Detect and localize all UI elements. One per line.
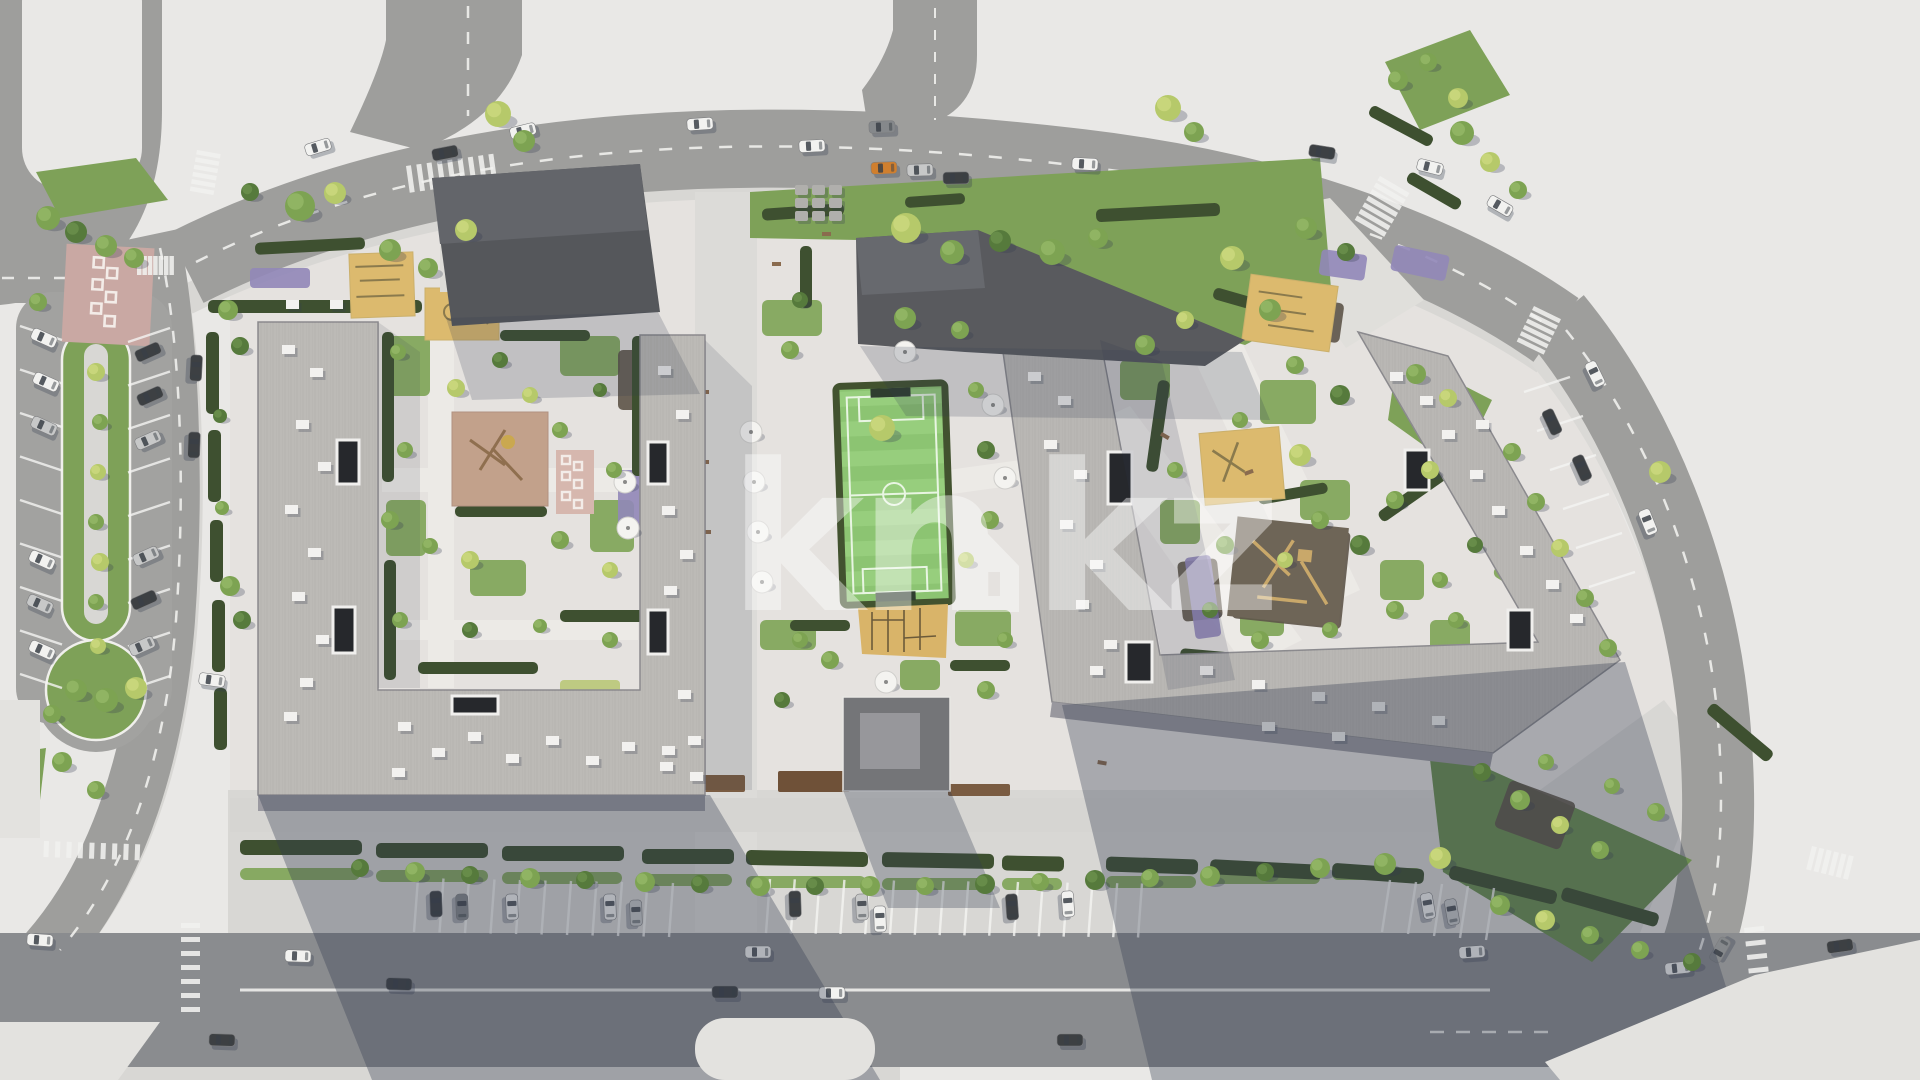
roof-vent <box>662 746 675 755</box>
car-rear-window <box>229 1036 232 1044</box>
roof-vent <box>622 742 635 751</box>
tree-canopy-highlight <box>398 443 407 452</box>
umbrella-pole <box>884 680 888 684</box>
tree-canopy-highlight <box>1157 97 1171 111</box>
seat-cube <box>829 198 842 208</box>
seat-cube <box>795 185 808 195</box>
play-hut <box>1297 549 1312 562</box>
car-rear-window <box>839 989 842 997</box>
tree-canopy-highlight <box>381 241 393 253</box>
tree-canopy-highlight <box>952 322 962 332</box>
tree-canopy-highlight <box>1408 366 1419 377</box>
car-rear-window <box>47 936 51 944</box>
tree-canopy-highlight <box>523 388 532 397</box>
roof-vent <box>688 736 701 745</box>
roof-vent <box>1090 666 1103 675</box>
car-windshield <box>1063 898 1073 904</box>
tree-canopy-highlight <box>220 302 231 313</box>
tree-canopy-highlight <box>1041 241 1055 255</box>
roof-vent <box>546 736 559 745</box>
tree-canopy-highlight <box>607 463 616 472</box>
tree-canopy-highlight <box>1338 244 1348 254</box>
car <box>785 891 802 921</box>
roof-hatch <box>452 696 498 714</box>
roof-hatch <box>648 610 668 654</box>
car-windshield <box>189 439 198 444</box>
roof-vent <box>690 772 703 781</box>
car-rear-window <box>927 166 930 174</box>
car-rear-window <box>190 452 198 455</box>
tree-canopy-highlight <box>96 690 109 703</box>
car <box>907 163 937 180</box>
tree-canopy-highlight <box>522 870 533 881</box>
roof-vent <box>1252 680 1265 689</box>
tree-canopy-highlight <box>92 554 102 564</box>
playground-left-central <box>452 412 548 506</box>
tree-canopy-highlight <box>93 415 102 424</box>
car <box>870 906 887 936</box>
tree-canopy-highlight <box>793 293 802 302</box>
roof-vent <box>660 762 673 771</box>
tree-canopy-highlight <box>1332 387 1343 398</box>
tree-canopy-highlight <box>352 860 362 870</box>
entrance-pavilion <box>843 697 950 791</box>
hedge-row <box>746 850 868 867</box>
tree-canopy-highlight <box>457 221 469 233</box>
seat-cube <box>812 211 825 221</box>
tree-canopy-highlight <box>382 512 392 522</box>
tree-canopy-highlight <box>977 876 988 887</box>
seat-cube <box>829 185 842 195</box>
lawn-patch <box>762 300 822 336</box>
car <box>1057 891 1075 921</box>
car <box>209 1034 239 1051</box>
tree-canopy-highlight <box>88 364 98 374</box>
car <box>1001 894 1019 924</box>
tree-canopy-highlight <box>1323 623 1332 632</box>
tree-canopy-highlight <box>1312 860 1323 871</box>
tree-canopy-highlight <box>232 338 242 348</box>
hedge-row <box>455 506 547 517</box>
crosswalk-stripe <box>66 842 72 858</box>
tree-canopy-highlight <box>222 578 233 589</box>
car-rear-window <box>858 914 866 917</box>
tree-canopy-highlight <box>393 613 402 622</box>
tree-canopy-highlight <box>1605 779 1614 788</box>
roof-vent <box>1476 420 1489 429</box>
tree-canopy-highlight <box>127 679 139 691</box>
roof-vent <box>308 548 321 557</box>
tree-canopy-highlight <box>998 633 1007 642</box>
car <box>943 172 972 189</box>
seat-cubes-layer <box>795 185 845 224</box>
car-windshield <box>1079 159 1084 168</box>
tree-canopy-highlight <box>91 639 100 648</box>
car-rear-window <box>1064 911 1072 915</box>
roof-vent <box>678 690 691 699</box>
parking-median-path <box>84 344 108 624</box>
tree-canopy-highlight <box>534 620 542 628</box>
roof-hatch <box>337 440 359 484</box>
tree-canopy-highlight <box>1552 540 1562 550</box>
tree-canopy-highlight <box>1537 912 1548 923</box>
roof-vent <box>1390 372 1403 381</box>
crosswalk-stripe <box>181 1007 200 1012</box>
tree-canopy-highlight <box>1431 849 1443 861</box>
roof-vent <box>506 754 519 763</box>
tree-canopy-highlight <box>1390 72 1401 83</box>
tree-canopy-highlight <box>1090 230 1101 241</box>
crosswalk-stripe <box>181 993 200 998</box>
tree-canopy-highlight <box>515 132 527 144</box>
tree-canopy-highlight <box>1202 868 1213 879</box>
tree-canopy-highlight <box>969 383 978 392</box>
roof-vent <box>292 592 305 601</box>
roof-vent <box>282 345 295 354</box>
tree-canopy-highlight <box>242 184 252 194</box>
seat-cube <box>812 198 825 208</box>
tree-canopy-highlight <box>1297 219 1309 231</box>
tree-canopy-highlight <box>1510 182 1520 192</box>
roof-vent <box>680 550 693 559</box>
crosswalk-stripe <box>181 951 200 956</box>
roof-vent <box>316 635 329 644</box>
tree-canopy-highlight <box>1261 301 1273 313</box>
car <box>687 117 717 135</box>
car-windshield <box>857 901 866 906</box>
hedge-row <box>950 660 1010 671</box>
tree-canopy-highlight <box>637 874 648 885</box>
car-windshield <box>1007 901 1017 907</box>
tree-canopy-highlight <box>88 782 98 792</box>
hedge-row <box>206 332 219 414</box>
car <box>852 894 869 924</box>
tree-canopy-highlight <box>1552 817 1562 827</box>
crosswalk-stripe <box>135 844 141 860</box>
car <box>1071 157 1101 174</box>
hedge-row <box>208 430 221 502</box>
tree-canopy-highlight <box>942 242 955 255</box>
roof-vent <box>285 505 298 514</box>
tree-canopy-highlight <box>1422 462 1432 472</box>
tree-canopy-highlight <box>423 539 432 548</box>
tree-canopy-highlight <box>391 345 400 354</box>
tree-canopy-highlight <box>603 563 612 572</box>
roof-vent <box>318 462 331 471</box>
tree-canopy-highlight <box>30 294 40 304</box>
tree-canopy-highlight <box>126 250 137 261</box>
sand-surface <box>349 252 415 318</box>
tree-canopy-highlight <box>1376 855 1388 867</box>
roof-hatch <box>648 442 668 484</box>
car-windshield <box>914 165 919 174</box>
tree-canopy-highlight <box>1440 390 1450 400</box>
car-windshield <box>950 173 955 182</box>
roof-vent <box>392 768 405 777</box>
roof-vent <box>676 410 689 419</box>
crosswalk-stripe <box>181 979 200 984</box>
tree-canopy-highlight <box>1222 248 1235 261</box>
pavilion-skylight <box>860 713 920 769</box>
car-windshield <box>790 898 799 903</box>
tree-canopy-highlight <box>1387 492 1397 502</box>
tree-canopy-highlight <box>89 595 98 604</box>
umbrella-pole <box>1003 476 1007 480</box>
crosswalk-stripe <box>100 843 106 859</box>
car-rear-window <box>876 926 884 929</box>
roof-hatch <box>1508 610 1532 650</box>
car-windshield <box>216 1035 221 1044</box>
roof-vent <box>286 300 299 309</box>
car-rear-window <box>1077 1036 1080 1044</box>
tree-canopy-highlight <box>326 184 338 196</box>
tree-canopy-highlight <box>553 423 562 432</box>
tree-canopy-highlight <box>216 502 224 510</box>
tree-canopy-highlight <box>1468 538 1477 547</box>
car-rear-window <box>707 119 711 127</box>
tree-canopy-highlight <box>1257 864 1267 874</box>
tree-canopy-highlight <box>1577 590 1587 600</box>
bench <box>772 262 781 266</box>
crosswalk-stripe <box>153 256 158 275</box>
tree-canopy-highlight <box>1504 444 1514 454</box>
roof-vent <box>398 722 411 731</box>
tree-canopy-highlight <box>67 223 79 235</box>
plaza-left-1 <box>0 700 40 838</box>
crosswalk-stripe <box>159 256 164 275</box>
bench <box>822 232 831 236</box>
hedge-row <box>210 520 223 582</box>
cast-shadow <box>446 312 700 400</box>
tree-canopy-highlight <box>752 878 763 889</box>
car-windshield <box>191 362 200 367</box>
tree-canopy-highlight <box>1312 512 1322 522</box>
umbrella-pole <box>626 526 630 530</box>
tree-canopy-highlight <box>462 867 472 877</box>
roof-vent <box>586 756 599 765</box>
car-rear-window <box>1092 160 1096 168</box>
car-rear-window <box>889 123 892 131</box>
tree-canopy-highlight <box>1651 463 1663 475</box>
hopscotch-paving-courtyard <box>556 450 594 514</box>
car-rear-window <box>891 164 894 172</box>
roof-vent <box>664 586 677 595</box>
roof-vent <box>284 712 297 721</box>
roof-vent <box>662 506 675 515</box>
tree-canopy-highlight <box>1582 927 1592 937</box>
tree-canopy-highlight <box>603 633 612 642</box>
tree-canopy-highlight <box>1087 872 1098 883</box>
tree-canopy-highlight <box>407 864 418 875</box>
car-windshield <box>806 141 811 150</box>
roof-hatch <box>333 607 355 653</box>
roof-vent <box>1470 470 1483 479</box>
tree-canopy-highlight <box>782 342 792 352</box>
car-windshield <box>292 951 297 960</box>
tree-canopy-highlight <box>1492 897 1503 908</box>
seat-cube <box>795 198 808 208</box>
cast-shadow <box>860 346 1270 420</box>
tree-canopy-highlight <box>1433 573 1442 582</box>
tree-canopy-highlight <box>896 309 908 321</box>
car-windshield <box>694 119 700 129</box>
tree-canopy-highlight <box>234 612 244 622</box>
play-tower <box>501 435 515 449</box>
crosswalk <box>43 841 140 860</box>
crosswalk-stripe <box>112 843 118 859</box>
tree-canopy-highlight <box>214 410 222 418</box>
roof-vent <box>296 420 309 429</box>
seat-cube <box>829 211 842 221</box>
car <box>26 933 56 951</box>
tree-canopy-highlight <box>1352 537 1363 548</box>
tree-canopy-highlight <box>1474 764 1484 774</box>
tree-canopy-highlight <box>463 623 472 632</box>
crosswalk-stripe <box>164 256 169 275</box>
tree-canopy-highlight <box>917 878 927 888</box>
tree-canopy-highlight <box>287 193 304 210</box>
roof-vent <box>300 678 313 687</box>
tree-canopy-highlight <box>1177 312 1187 322</box>
tree-canopy-highlight <box>1032 874 1042 884</box>
left-community-building <box>432 164 660 326</box>
tree-canopy-highlight <box>1142 870 1152 880</box>
brown-plaza <box>452 412 548 506</box>
hedge-row <box>418 662 538 674</box>
tree-canopy-highlight <box>991 232 1003 244</box>
tree-canopy-highlight <box>775 693 784 702</box>
tree-canopy-highlight <box>67 681 79 693</box>
car <box>1057 1034 1086 1050</box>
playground-left-north-1 <box>349 252 415 318</box>
car <box>183 432 200 462</box>
tree-canopy-highlight <box>1648 804 1658 814</box>
seat-cube <box>812 185 825 195</box>
car-windshield <box>1064 1035 1069 1044</box>
tree-canopy-highlight <box>493 353 502 362</box>
tree-canopy-highlight <box>1186 124 1197 135</box>
tree-canopy-highlight <box>1278 553 1287 562</box>
tree-canopy-highlight <box>1137 337 1148 348</box>
playground-right-north <box>1242 274 1338 352</box>
crosswalk-stripe <box>169 256 174 275</box>
car-rear-window <box>819 141 823 149</box>
seat-cube <box>795 211 808 221</box>
tree-canopy-highlight <box>1512 792 1523 803</box>
roof-vent <box>1420 396 1433 405</box>
roof-vent <box>310 368 323 377</box>
tree-canopy-highlight <box>577 872 587 882</box>
watermark-text-kn: kn <box>728 421 998 659</box>
tree-canopy-highlight <box>462 552 472 562</box>
tree-canopy-highlight <box>1528 494 1538 504</box>
tree-canopy-highlight <box>1684 954 1694 964</box>
tree-canopy-highlight <box>1482 154 1493 165</box>
tree-canopy-highlight <box>1291 446 1303 458</box>
tree-canopy-highlight <box>1287 357 1297 367</box>
roof-vent <box>432 748 445 757</box>
lawn-patch <box>1380 560 1424 600</box>
tree-canopy-highlight <box>1420 54 1430 64</box>
car-rear-window <box>305 952 308 960</box>
car <box>799 139 829 156</box>
hedge-row <box>212 600 225 672</box>
car <box>185 354 202 384</box>
roof-vent <box>1570 614 1583 623</box>
tree-canopy-highlight <box>1632 942 1642 952</box>
crosswalk-stripe <box>181 937 200 942</box>
car-windshield <box>876 122 881 131</box>
tree-canopy-highlight <box>1452 123 1465 136</box>
car <box>869 120 899 137</box>
tree-canopy-highlight <box>487 103 501 117</box>
tree-canopy-highlight <box>1592 842 1602 852</box>
tree-canopy-highlight <box>862 878 873 889</box>
car-rear-window <box>191 375 199 379</box>
roof-vent <box>1492 506 1505 515</box>
tree-canopy-highlight <box>420 260 431 271</box>
crosswalk-stripe <box>78 842 84 858</box>
car-windshield <box>34 935 40 945</box>
hedge-row <box>1002 855 1064 871</box>
watermark-text-kz: kz <box>1032 421 1276 659</box>
car <box>871 161 901 178</box>
tree-canopy-highlight <box>692 876 702 886</box>
crosswalk-stripe <box>55 841 61 857</box>
tree-canopy-highlight <box>807 878 817 888</box>
tree-canopy-highlight <box>978 682 988 692</box>
roof-vent <box>330 300 343 309</box>
car <box>285 950 315 967</box>
pergola-2 <box>778 771 850 792</box>
car-rear-window <box>963 174 966 182</box>
crosswalk-stripe <box>181 923 200 928</box>
car-rear-window <box>1008 914 1016 918</box>
roof-vent <box>1546 580 1559 589</box>
crosswalk-stripe <box>89 843 95 859</box>
tree-canopy-highlight <box>1600 640 1610 650</box>
tree-canopy-highlight <box>44 706 54 716</box>
plaza-bottom-center <box>695 1018 875 1080</box>
tree-canopy-highlight <box>552 532 562 542</box>
crosswalk-stripe <box>181 965 200 970</box>
lawn-patch <box>900 660 940 690</box>
car-rear-window <box>791 911 799 914</box>
tree-canopy-highlight <box>1539 755 1548 764</box>
tree-canopy-highlight <box>54 754 65 765</box>
cast-shadow <box>378 322 420 688</box>
tree-canopy-highlight <box>1449 613 1458 622</box>
left-courtyard-path-h2 <box>382 620 638 640</box>
hedge-row <box>214 688 227 750</box>
tree-canopy-highlight <box>448 380 458 390</box>
car-windshield <box>878 163 883 172</box>
car-windshield <box>875 913 884 918</box>
umbrella-pole <box>623 480 627 484</box>
crosswalk-stripe <box>123 844 129 860</box>
roof-vent <box>1520 546 1533 555</box>
tree-canopy-highlight <box>91 465 100 474</box>
flowerbed <box>250 268 310 288</box>
crosswalk-stripe <box>43 841 49 857</box>
tree-canopy-highlight <box>89 515 98 524</box>
pergola-3 <box>948 784 1010 796</box>
aerial-render: kn kz <box>0 0 1920 1080</box>
roof-vent <box>468 732 481 741</box>
tree-canopy-highlight <box>893 215 910 232</box>
tree-canopy-highlight <box>594 384 602 392</box>
tree-canopy-highlight <box>1450 90 1461 101</box>
